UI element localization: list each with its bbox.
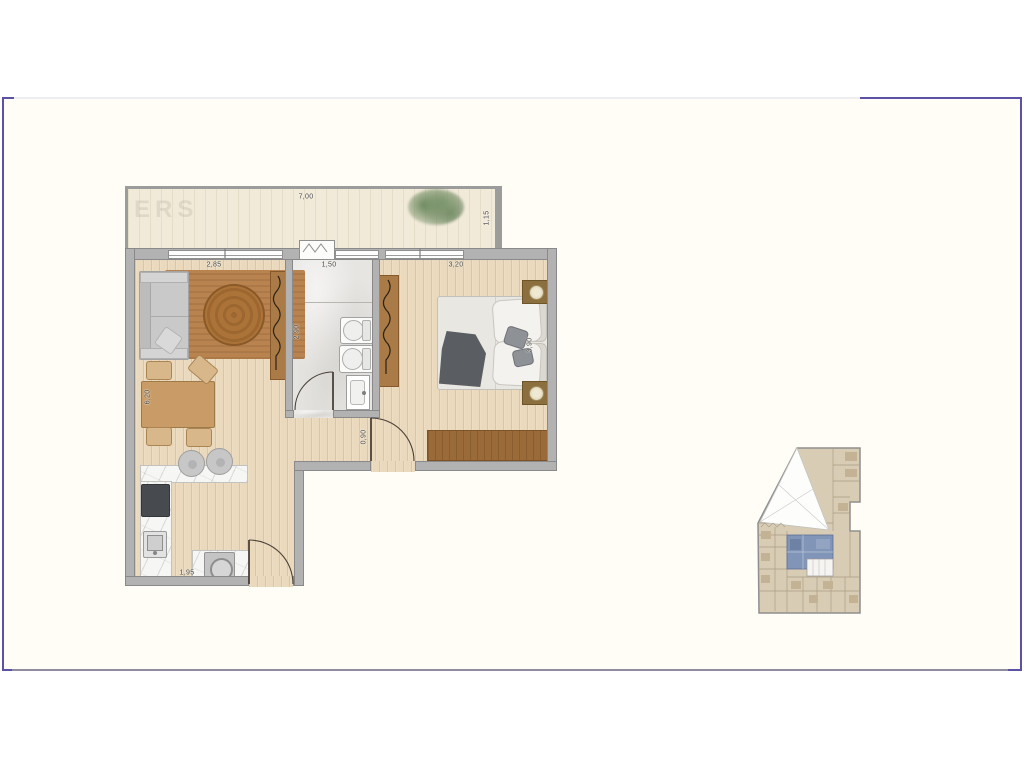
bathroom-door [295,372,333,410]
dim-bedroom-depth: 3,90 [527,338,534,353]
dim-terrace-depth: 1,15 [484,211,491,226]
hall-door [371,418,414,461]
page: ERS [0,0,1024,768]
dim-bathroom-width: 1,50 [322,262,337,269]
wardrobe-rail [383,280,390,374]
window-ticks [225,249,420,258]
dim-living-width: 2,85 [207,262,222,269]
dim-living-depth: 6,20 [145,390,152,405]
ac-zigzag [303,244,327,252]
entrance-door [249,540,293,584]
key-plan-stairs [807,559,833,576]
plan-line-overlay [0,0,1024,768]
dim-kitchen-width: 1,95 [180,570,195,577]
dim-bedroom-width: 3,20 [449,262,464,269]
dim-hall-width: 0,90 [361,430,368,445]
wardrobe-rail [273,276,280,370]
dim-terrace-width: 7,00 [299,194,314,201]
key-plan [753,447,865,617]
dim-bathroom-depth: 2,90 [294,325,301,340]
